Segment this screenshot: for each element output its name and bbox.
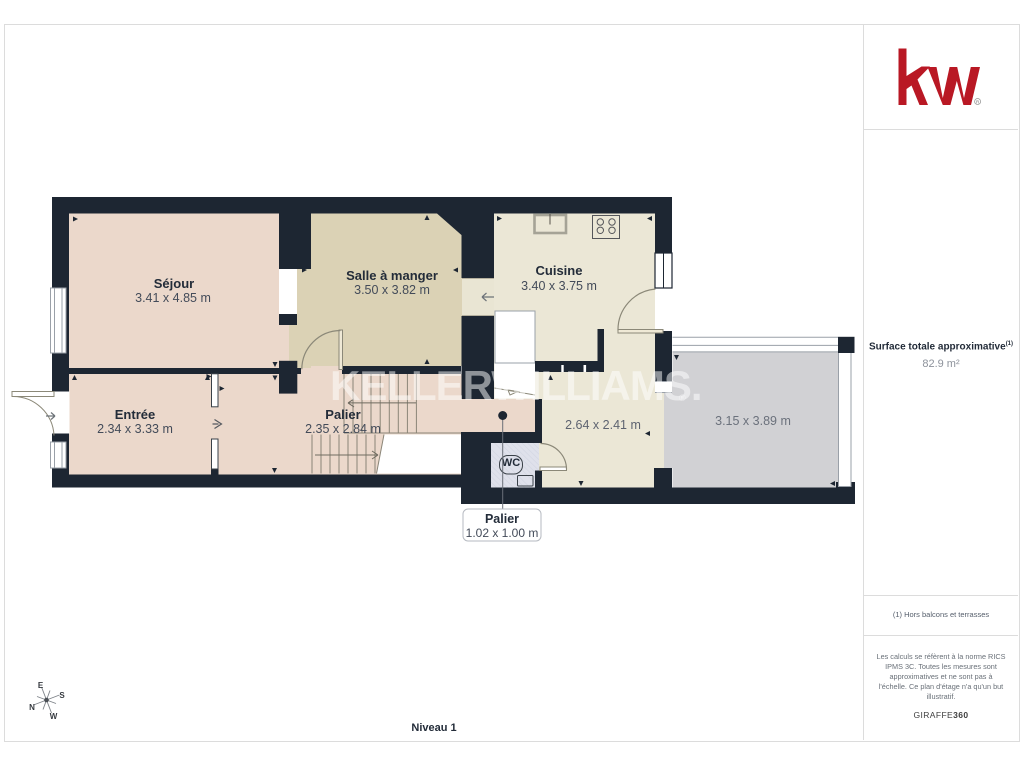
svg-text:3.40 x 3.75 m: 3.40 x 3.75 m (521, 279, 597, 293)
svg-text:S: S (59, 691, 65, 700)
svg-text:3.15 x 3.89 m: 3.15 x 3.89 m (715, 414, 791, 428)
svg-text:2.35 x 2.84 m: 2.35 x 2.84 m (305, 422, 381, 436)
svg-text:Cuisine: Cuisine (536, 263, 583, 278)
svg-text:E: E (38, 681, 44, 690)
svg-text:N: N (29, 703, 35, 712)
svg-text:1.02 x 1.00 m: 1.02 x 1.00 m (466, 526, 539, 540)
svg-text:KELLERWILLIAMS.: KELLERWILLIAMS. (330, 362, 702, 409)
svg-text:Entrée: Entrée (115, 407, 155, 422)
svg-text:Salle à manger: Salle à manger (346, 268, 438, 283)
svg-text:WC: WC (502, 457, 520, 469)
svg-text:®: ® (679, 393, 686, 403)
svg-text:3.41 x 4.85 m: 3.41 x 4.85 m (135, 291, 211, 305)
svg-text:Séjour: Séjour (154, 276, 194, 291)
svg-text:W: W (50, 712, 58, 721)
svg-text:2.64 x 2.41 m: 2.64 x 2.41 m (565, 418, 641, 432)
svg-text:Palier: Palier (325, 407, 360, 422)
svg-text:3.50 x 3.82 m: 3.50 x 3.82 m (354, 283, 430, 297)
svg-text:2.34 x 3.33 m: 2.34 x 3.33 m (97, 422, 173, 436)
svg-text:Palier: Palier (485, 512, 519, 526)
